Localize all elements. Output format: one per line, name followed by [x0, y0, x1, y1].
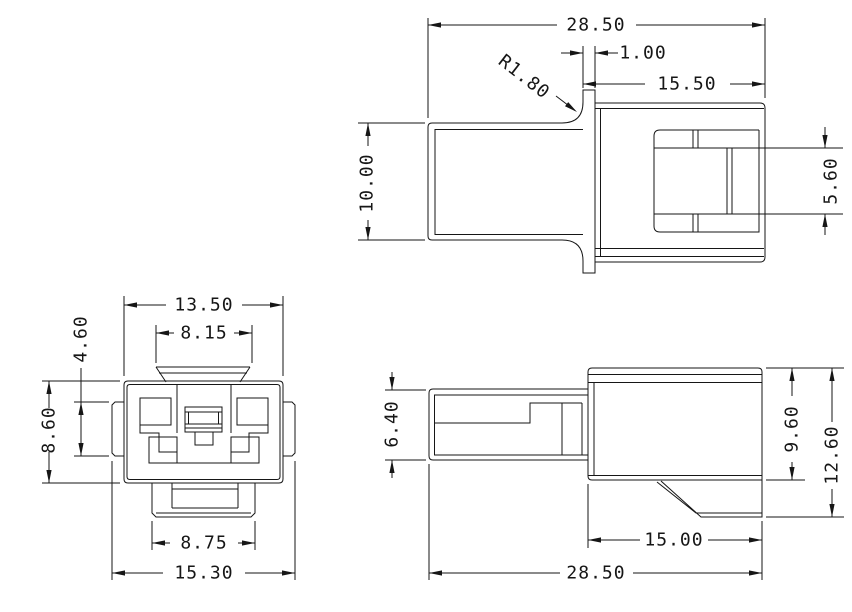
dim-skirt-width: 8.75 — [180, 533, 227, 554]
dim-tab-width: 8.15 — [180, 323, 227, 344]
dim-housing-length: 15.50 — [657, 74, 716, 95]
dim-body-width: 13.50 — [174, 295, 233, 316]
dim-overall-length: 28.50 — [566, 563, 625, 584]
dim-overall-width: 28.50 — [566, 15, 625, 36]
cad-drawing-sheet: 28.50 1.00 15.50 R1.80 10.00 5.60 13.50 … — [0, 0, 852, 612]
dim-housing-length: 15.00 — [644, 530, 703, 551]
dim-barrel-height: 10.00 — [357, 153, 378, 212]
dim-overall-width: 15.30 — [174, 563, 233, 584]
dim-overall-height: 12.60 — [822, 425, 843, 484]
dim-flange-thickness: 1.00 — [619, 43, 666, 64]
dim-latch-window-height: 5.60 — [821, 157, 842, 204]
connector-engineering-drawing: 28.50 1.00 15.50 R1.80 10.00 5.60 13.50 … — [0, 0, 852, 612]
dim-barrel-height: 6.40 — [382, 400, 403, 447]
dim-wing-height: 4.60 — [71, 315, 92, 362]
dim-body-height: 8.60 — [39, 406, 60, 453]
dim-housing-height: 9.60 — [782, 405, 803, 452]
sheet-background — [0, 0, 852, 612]
